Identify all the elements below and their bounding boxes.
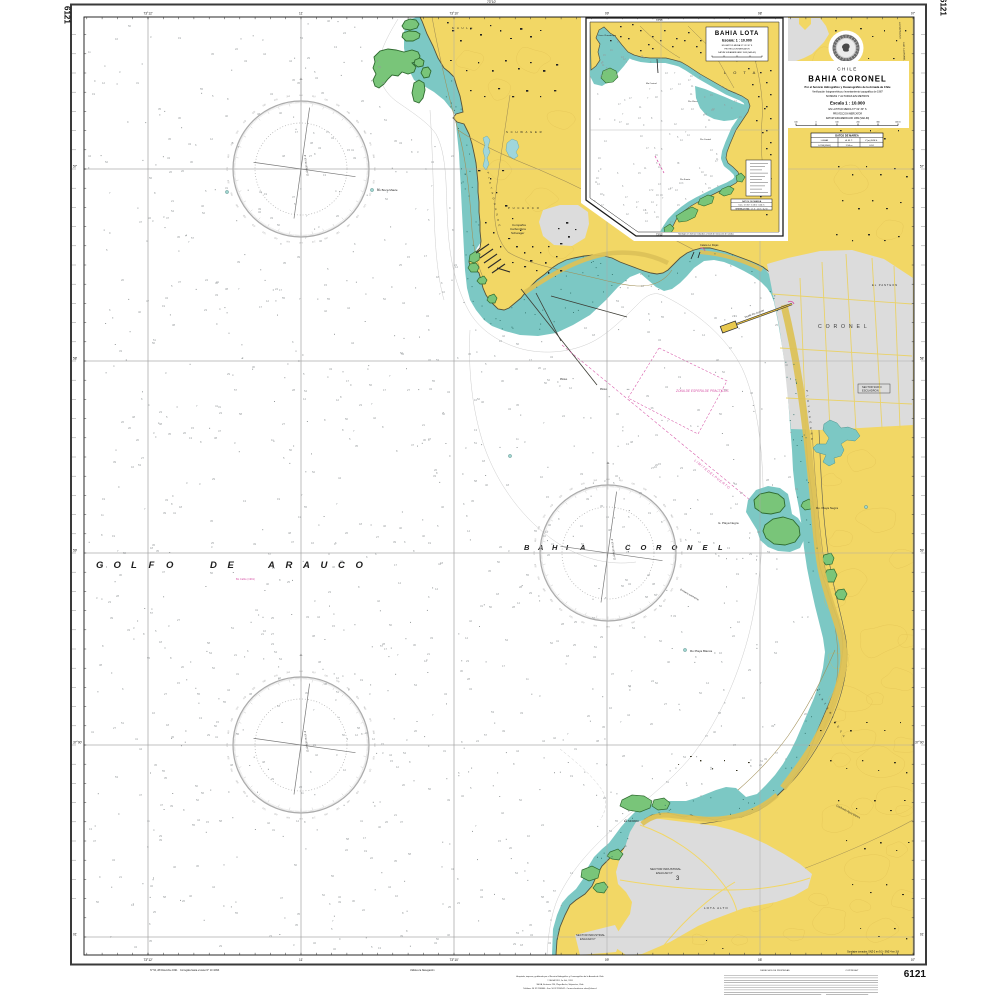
svg-text:ENACAR N°: ENACAR N°	[580, 937, 596, 941]
svg-text:57: 57	[150, 611, 153, 615]
svg-text:37: 37	[733, 743, 736, 747]
svg-text:52: 52	[502, 897, 505, 901]
svg-text:26: 26	[499, 545, 502, 549]
svg-text:12: 12	[343, 768, 346, 772]
svg-text:42: 42	[377, 599, 380, 603]
svg-text:L: L	[131, 560, 137, 571]
svg-text:44: 44	[627, 713, 630, 717]
svg-text:56: 56	[654, 593, 657, 597]
svg-text:26: 26	[385, 820, 388, 824]
svg-text:73°10': 73°10'	[487, 0, 496, 4]
svg-text:48: 48	[288, 531, 291, 535]
svg-text:34: 34	[480, 895, 483, 899]
svg-text:73°55': 73°55'	[656, 19, 663, 22]
svg-text:39: 39	[646, 394, 649, 398]
svg-text:41: 41	[556, 639, 559, 643]
svg-text:13: 13	[243, 499, 246, 503]
svg-text:57: 57	[380, 644, 383, 648]
svg-text:37: 37	[292, 195, 295, 199]
svg-text:32: 32	[616, 412, 619, 416]
svg-text:30: 30	[413, 643, 416, 647]
svg-text:55: 55	[200, 87, 203, 91]
svg-text:47: 47	[411, 443, 414, 447]
svg-text:55: 55	[235, 911, 238, 915]
svg-text:17: 17	[529, 358, 532, 362]
svg-text:29: 29	[749, 552, 752, 556]
svg-text:50: 50	[719, 412, 722, 416]
svg-text:29: 29	[207, 733, 210, 737]
svg-text:53: 53	[138, 463, 141, 467]
svg-text:25: 25	[775, 323, 778, 327]
svg-text:47: 47	[428, 437, 431, 441]
svg-text:38: 38	[652, 582, 655, 586]
svg-text:O: O	[641, 543, 647, 552]
svg-text:14: 14	[702, 333, 705, 337]
svg-text:LO PANTEAGUA: LO PANTEAGUA	[898, 22, 902, 39]
svg-text:D: D	[210, 560, 217, 571]
svg-text:44: 44	[317, 615, 320, 619]
svg-text:16: 16	[584, 326, 587, 330]
svg-text:27: 27	[664, 702, 667, 706]
svg-text:42: 42	[553, 736, 556, 740]
svg-text:DERECHOS DE PROPIEDAD: DERECHOS DE PROPIEDAD	[760, 969, 790, 972]
svg-text:Escala: 1 : 10.000: Escala: 1 : 10.000	[722, 39, 752, 43]
svg-text:PROYECCION MERCATOR: PROYECCION MERCATOR	[833, 113, 862, 116]
svg-text:Schwager: Schwager	[511, 231, 524, 235]
svg-text:43: 43	[340, 559, 343, 563]
svg-text:29: 29	[227, 372, 230, 376]
svg-text:15: 15	[498, 839, 501, 843]
svg-text:48: 48	[647, 573, 650, 577]
svg-text:16: 16	[152, 711, 155, 715]
svg-text:37°00': 37°00'	[73, 741, 82, 745]
svg-text:43: 43	[244, 59, 247, 63]
svg-text:46: 46	[383, 524, 386, 528]
svg-text:48: 48	[282, 154, 285, 158]
svg-text:40: 40	[378, 825, 381, 829]
svg-text:56: 56	[621, 584, 624, 588]
svg-text:25: 25	[448, 905, 451, 909]
svg-text:57: 57	[484, 733, 487, 737]
svg-text:33: 33	[270, 216, 273, 220]
svg-text:47: 47	[139, 220, 142, 224]
svg-text:33: 33	[215, 293, 218, 297]
svg-text:33: 33	[430, 636, 433, 640]
svg-text:18: 18	[166, 723, 169, 727]
svg-text:29: 29	[272, 566, 275, 570]
svg-text:16: 16	[545, 530, 548, 534]
svg-text:25: 25	[153, 910, 156, 914]
svg-text:45: 45	[488, 569, 491, 573]
svg-text:PROYECCION MERCATOR: PROYECCION MERCATOR	[724, 48, 750, 51]
svg-text:Teléfono: 56 32 2266666 - Fax:: Teléfono: 56 32 2266666 - Fax: 56 32 226…	[523, 987, 597, 990]
svg-text:48: 48	[132, 415, 135, 419]
svg-text:27: 27	[282, 422, 285, 426]
svg-text:40: 40	[422, 534, 425, 538]
svg-text:20: 20	[587, 714, 590, 718]
svg-text:LOTA ALTO: LOTA ALTO	[704, 906, 729, 910]
svg-text:12: 12	[266, 299, 269, 303]
svg-text:50: 50	[128, 24, 131, 28]
svg-text:43: 43	[399, 141, 402, 145]
svg-text:40: 40	[279, 111, 282, 115]
svg-text:27: 27	[407, 388, 410, 392]
svg-text:25: 25	[287, 580, 290, 584]
svg-text:14: 14	[570, 871, 573, 875]
svg-text:41: 41	[173, 511, 176, 515]
svg-text:14: 14	[435, 587, 438, 591]
svg-text:27: 27	[271, 632, 274, 636]
svg-text:34: 34	[365, 731, 368, 735]
svg-text:15: 15	[324, 283, 327, 287]
svg-text:45: 45	[292, 78, 295, 82]
svg-text:44: 44	[338, 476, 341, 480]
svg-text:13: 13	[626, 442, 629, 446]
svg-text:35: 35	[149, 939, 152, 943]
svg-text:14: 14	[296, 819, 299, 823]
svg-text:19: 19	[112, 534, 115, 538]
svg-text:46: 46	[785, 363, 788, 367]
svg-text:DATOS DE MAREA: DATOS DE MAREA	[742, 200, 762, 203]
svg-text:32: 32	[428, 358, 431, 362]
svg-text:54: 54	[414, 683, 417, 687]
svg-text:EL PANTEON: EL PANTEON	[872, 283, 898, 287]
svg-text:54: 54	[515, 871, 518, 875]
svg-text:58: 58	[163, 895, 166, 899]
svg-text:34: 34	[447, 390, 450, 394]
svg-text:30: 30	[252, 365, 255, 369]
svg-text:15: 15	[407, 255, 410, 259]
svg-text:12: 12	[355, 733, 358, 737]
svg-text:15: 15	[332, 624, 335, 628]
svg-text:34: 34	[315, 76, 318, 80]
svg-text:50: 50	[389, 623, 392, 627]
svg-text:25: 25	[573, 643, 576, 647]
svg-text:53: 53	[115, 775, 118, 779]
svg-text:34: 34	[434, 941, 437, 945]
svg-text:35: 35	[164, 776, 167, 780]
svg-text:58: 58	[645, 595, 648, 599]
svg-text:54: 54	[279, 657, 282, 661]
svg-text:53: 53	[436, 358, 439, 362]
svg-text:49: 49	[502, 729, 505, 733]
svg-text:28: 28	[622, 754, 625, 758]
svg-text:32: 32	[615, 474, 618, 478]
svg-text:10: 10	[697, 531, 700, 535]
svg-text:38: 38	[312, 634, 315, 638]
svg-text:DATOS DE MAREA: DATOS DE MAREA	[835, 134, 859, 138]
svg-text:30: 30	[119, 573, 122, 577]
svg-text:CHILE: CHILE	[837, 67, 858, 72]
svg-text:35: 35	[156, 549, 159, 553]
svg-text:B: B	[524, 543, 530, 552]
svg-text:25: 25	[574, 620, 577, 624]
svg-text:43: 43	[684, 512, 687, 516]
svg-text:12: 12	[735, 502, 738, 506]
svg-text:54: 54	[774, 651, 777, 655]
svg-text:32: 32	[333, 947, 336, 951]
svg-text:40: 40	[485, 483, 488, 487]
svg-text:16: 16	[395, 894, 398, 898]
svg-text:16: 16	[499, 339, 502, 343]
svg-text:46: 46	[189, 894, 192, 898]
svg-text:43: 43	[548, 941, 551, 945]
svg-text:53: 53	[400, 351, 403, 355]
svg-text:58: 58	[239, 412, 242, 416]
svg-text:Pilotes: Pilotes	[560, 378, 568, 381]
svg-text:56: 56	[210, 571, 213, 575]
svg-text:hora : 1 h 30' : 1.56 m : 0.24: hora : 1 h 30' : 1.56 m : 0.24 m	[739, 204, 765, 207]
svg-text:45: 45	[516, 403, 519, 407]
svg-text:17: 17	[383, 388, 386, 392]
svg-text:18: 18	[179, 505, 182, 509]
svg-text:41: 41	[551, 542, 554, 546]
svg-text:31: 31	[574, 747, 577, 751]
svg-text:44: 44	[347, 306, 350, 310]
svg-text:11': 11'	[299, 12, 303, 16]
svg-text:51: 51	[474, 441, 477, 445]
svg-text:SECTOR SUR O: SECTOR SUR O	[862, 385, 882, 389]
svg-text:52: 52	[550, 641, 553, 645]
svg-text:12: 12	[372, 737, 375, 741]
svg-text:44: 44	[289, 59, 292, 63]
svg-text:52: 52	[105, 160, 108, 164]
svg-text:44: 44	[227, 688, 230, 692]
svg-text:55: 55	[223, 700, 226, 704]
svg-text:47: 47	[146, 299, 149, 303]
svg-text:55: 55	[432, 379, 435, 383]
svg-text:31: 31	[236, 672, 239, 676]
svg-text:Z (m) B.M.S.: Z (m) B.M.S.	[865, 140, 878, 142]
svg-text:58: 58	[718, 711, 721, 715]
svg-text:32: 32	[259, 190, 262, 194]
svg-text:1.56 m: 1.56 m	[846, 145, 853, 147]
svg-text:19: 19	[102, 497, 105, 501]
svg-text:34: 34	[658, 338, 661, 342]
svg-text:37: 37	[611, 672, 614, 676]
svg-text:34: 34	[429, 387, 432, 391]
svg-text:16: 16	[719, 651, 722, 655]
svg-text:50: 50	[342, 733, 345, 737]
svg-text:✦: ✦	[606, 461, 610, 467]
svg-text:43: 43	[188, 142, 191, 146]
svg-text:22: 22	[710, 767, 713, 771]
svg-text:LOTA (6560): LOTA (6560)	[818, 144, 831, 147]
svg-text:15: 15	[177, 681, 180, 685]
svg-text:17: 17	[363, 836, 366, 840]
svg-text:58: 58	[541, 895, 544, 899]
svg-text:17: 17	[295, 130, 298, 134]
svg-text:45: 45	[211, 52, 214, 56]
svg-text:19: 19	[277, 497, 280, 501]
svg-text:15: 15	[347, 148, 350, 152]
svg-text:41: 41	[360, 819, 363, 823]
svg-text:SHOA, Errázuriz 254, Playa Anc: SHOA, Errázuriz 254, Playa Ancha, Valpar…	[536, 983, 584, 986]
svg-text:34: 34	[165, 296, 168, 300]
svg-text:16: 16	[737, 620, 740, 624]
svg-text:33: 33	[580, 472, 583, 476]
svg-text:49: 49	[338, 900, 341, 904]
svg-text:52: 52	[322, 893, 325, 897]
svg-text:56: 56	[331, 874, 334, 878]
svg-text:27: 27	[309, 154, 312, 158]
svg-text:38: 38	[225, 287, 228, 291]
svg-text:53: 53	[300, 36, 303, 40]
svg-text:50: 50	[497, 560, 500, 564]
svg-text:17: 17	[346, 379, 349, 383]
svg-text:51: 51	[378, 65, 381, 69]
svg-text:39: 39	[170, 804, 173, 808]
svg-text:42: 42	[278, 676, 281, 680]
svg-text:26: 26	[169, 170, 172, 174]
svg-text:21: 21	[119, 875, 122, 879]
svg-text:40: 40	[399, 526, 402, 530]
svg-text:15: 15	[673, 498, 676, 502]
svg-text:L O T A: L O T A	[724, 70, 758, 75]
svg-text:57': 57'	[920, 165, 925, 169]
svg-text:COPYRIGHT: COPYRIGHT	[845, 970, 859, 972]
svg-text:52: 52	[594, 564, 597, 568]
svg-text:16: 16	[115, 37, 118, 41]
svg-text:58: 58	[474, 479, 477, 483]
svg-text:23: 23	[359, 403, 362, 407]
svg-text:52: 52	[592, 616, 595, 620]
svg-text:45: 45	[154, 763, 157, 767]
svg-text:22: 22	[788, 475, 791, 479]
svg-text:12: 12	[336, 676, 339, 680]
svg-text:Caleta Lo Rojas: Caleta Lo Rojas	[700, 243, 719, 247]
svg-text:48: 48	[159, 422, 162, 426]
svg-text:18: 18	[436, 275, 439, 279]
svg-text:29: 29	[159, 834, 162, 838]
svg-text:33: 33	[127, 628, 130, 632]
svg-text:6121: 6121	[63, 6, 72, 24]
svg-text:L: L	[718, 543, 723, 552]
svg-text:Aceptada, impresa y publicada: Aceptada, impresa y publicada por el Ser…	[516, 975, 604, 978]
svg-text:47: 47	[543, 367, 546, 371]
svg-text:57: 57	[553, 889, 556, 893]
svg-text:44: 44	[139, 747, 142, 751]
svg-text:23: 23	[269, 934, 272, 938]
svg-text:10: 10	[527, 834, 530, 838]
svg-text:34: 34	[270, 92, 273, 96]
svg-text:38: 38	[318, 660, 321, 664]
svg-text:53: 53	[616, 299, 619, 303]
svg-text:Pta Cuartel: Pta Cuartel	[700, 138, 711, 141]
svg-text:14: 14	[131, 903, 134, 907]
svg-text:28: 28	[299, 785, 302, 789]
svg-text:23: 23	[457, 901, 460, 905]
svg-text:27: 27	[177, 618, 180, 622]
svg-text:19: 19	[92, 92, 95, 96]
svg-text:40: 40	[667, 660, 670, 664]
svg-text:33: 33	[119, 349, 122, 353]
svg-text:12: 12	[396, 765, 399, 769]
svg-text:19: 19	[648, 511, 651, 515]
svg-text:43: 43	[726, 443, 729, 447]
svg-text:N: N	[687, 543, 693, 552]
svg-text:400 m: 400 m	[895, 122, 901, 124]
svg-text:45: 45	[168, 137, 171, 141]
svg-text:20: 20	[655, 463, 658, 467]
svg-text:16: 16	[131, 465, 134, 469]
svg-text:45: 45	[297, 81, 300, 85]
svg-text:EN LATITUD MEDIA 37° 05' 30" S: EN LATITUD MEDIA 37° 05' 30" S	[722, 44, 753, 47]
svg-text:54: 54	[304, 389, 307, 393]
svg-text:44: 44	[542, 739, 545, 743]
svg-text:16: 16	[641, 284, 644, 288]
svg-text:24: 24	[343, 31, 346, 35]
svg-text:15: 15	[206, 820, 209, 824]
svg-text:28: 28	[467, 677, 470, 681]
svg-text:58: 58	[207, 641, 210, 645]
svg-text:30: 30	[501, 379, 504, 383]
svg-text:46: 46	[319, 239, 322, 243]
svg-text:34: 34	[134, 945, 137, 949]
svg-text:48: 48	[257, 112, 260, 116]
svg-text:56: 56	[149, 176, 152, 180]
svg-text:47: 47	[729, 346, 732, 350]
svg-text:49: 49	[771, 724, 774, 728]
svg-text:18: 18	[506, 483, 509, 487]
svg-text:58: 58	[357, 726, 360, 730]
svg-text:41: 41	[91, 730, 94, 734]
svg-text:28: 28	[292, 388, 295, 392]
svg-text:16: 16	[609, 706, 612, 710]
svg-text:59': 59'	[920, 549, 925, 553]
svg-text:40: 40	[138, 310, 141, 314]
svg-text:46: 46	[327, 19, 330, 23]
svg-text:73°10': 73°10'	[450, 12, 459, 16]
svg-text:52: 52	[547, 378, 550, 382]
svg-text:13: 13	[199, 716, 202, 720]
svg-text:58: 58	[219, 819, 222, 823]
svg-text:18: 18	[496, 592, 499, 596]
svg-text:52: 52	[724, 388, 727, 392]
svg-text:24: 24	[476, 739, 479, 743]
svg-text:39: 39	[305, 691, 308, 695]
svg-text:31: 31	[218, 405, 221, 409]
svg-text:20: 20	[509, 846, 512, 850]
svg-text:34: 34	[593, 655, 596, 659]
svg-text:38: 38	[214, 436, 217, 440]
svg-text:26: 26	[414, 729, 417, 733]
svg-text:09': 09'	[605, 958, 610, 962]
svg-text:Válida a la Navegación: Válida a la Navegación	[410, 969, 435, 972]
svg-text:28: 28	[766, 478, 769, 482]
svg-text:30: 30	[546, 900, 549, 904]
svg-text:42: 42	[315, 753, 318, 757]
svg-text:29: 29	[529, 591, 532, 595]
svg-text:59': 59'	[73, 549, 78, 553]
svg-text:34: 34	[628, 582, 631, 586]
svg-text:07': 07'	[911, 958, 916, 962]
svg-text:15: 15	[390, 759, 393, 763]
svg-text:15: 15	[191, 426, 194, 430]
svg-text:40: 40	[225, 114, 228, 118]
svg-text:23: 23	[108, 600, 111, 604]
svg-text:49: 49	[764, 757, 767, 761]
svg-text:54: 54	[632, 626, 635, 630]
svg-text:6121: 6121	[904, 969, 927, 980]
svg-text:45: 45	[529, 923, 532, 927]
svg-text:26: 26	[121, 420, 124, 424]
svg-text:13: 13	[474, 428, 477, 432]
svg-text:✦: ✦	[299, 653, 303, 659]
svg-text:44: 44	[438, 562, 441, 566]
svg-text:O: O	[114, 560, 122, 571]
svg-text:58': 58'	[920, 357, 925, 361]
